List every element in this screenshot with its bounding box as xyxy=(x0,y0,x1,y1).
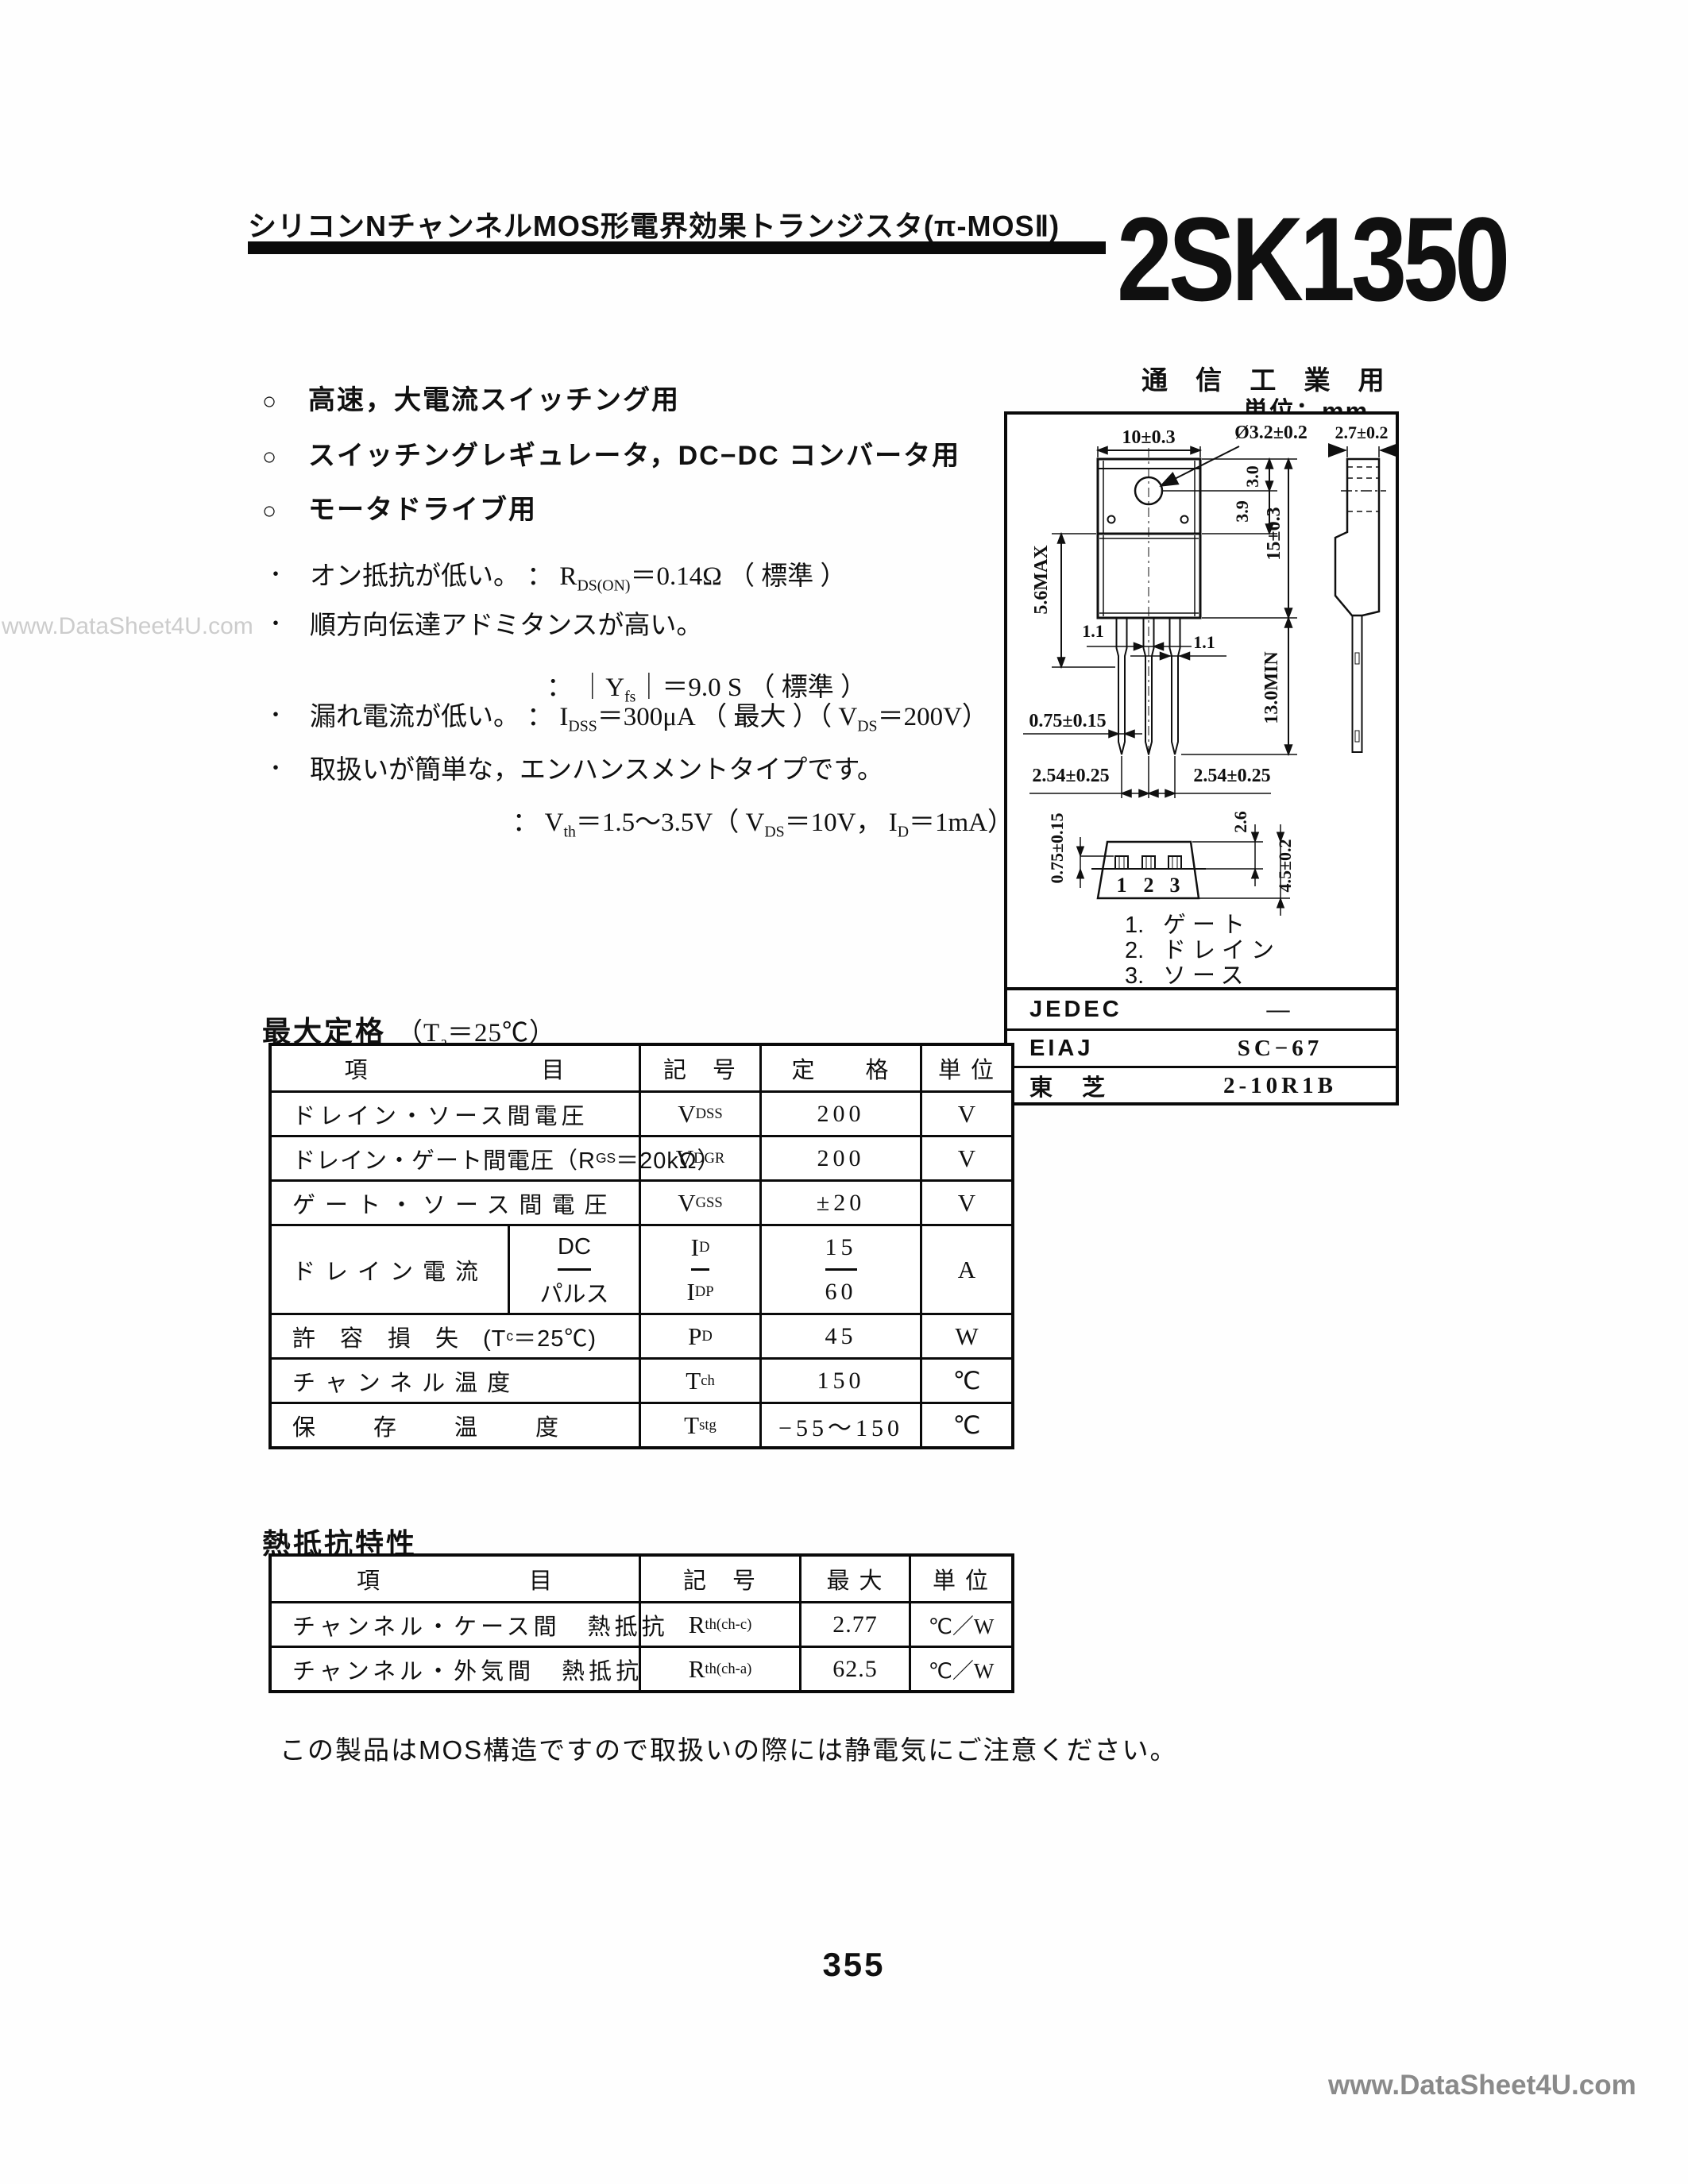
dim-hole-dia: Ø3.2±0.2 xyxy=(1234,423,1308,443)
feature-item: ・漏れ電流が低い。 ： IDSS＝300μA （ 最大 ）（ VDS＝200V） xyxy=(265,695,988,736)
dim-lead-length: 13.0MIN xyxy=(1261,651,1282,724)
pin-legend-number: 1. xyxy=(1125,913,1144,938)
toshiba-value: 2-10R1B xyxy=(1165,1073,1396,1099)
side-view xyxy=(1335,459,1386,752)
dim-height: 15±0.3 xyxy=(1264,507,1284,560)
pin-1-number: 1 xyxy=(1117,874,1127,897)
feature-item: ・順方向伝達アドミタンスが高い。 xyxy=(265,604,702,642)
jedec-value: ― xyxy=(1165,997,1396,1023)
eiaj-label: EIAJ xyxy=(1007,1036,1165,1062)
dim-2-6: 2.6 xyxy=(1230,811,1250,833)
dim-lead-thickness: 0.75±0.15 xyxy=(1029,711,1106,731)
circle-bullet-icon: ○ xyxy=(262,388,308,415)
table-row: チャンネル・外気間 熱抵抗 Rth(ch-a) 62.5 ℃／W xyxy=(272,1646,1011,1690)
bottom-view xyxy=(1077,824,1291,916)
watermark: www.DataSheet4U.com xyxy=(2,613,253,640)
eiaj-value: SC−67 xyxy=(1165,1036,1396,1062)
package-id-row: 東 芝 2-10R1B xyxy=(1007,1066,1396,1103)
dim-side-width: 2.7±0.2 xyxy=(1335,423,1388,442)
dim-3-0: 3.0 xyxy=(1242,465,1262,488)
dim-lead-w2: 1.1 xyxy=(1193,632,1215,652)
table-row: 許 容 損 失 (Tc＝25℃) PD 45 W xyxy=(272,1313,1011,1357)
dim-bottom-height: 4.5±0.2 xyxy=(1275,839,1295,892)
package-drawing: 10±0.3 Ø3.2±0.2 2.7±0.2 3.0 3.9 15±0.3 1… xyxy=(1007,415,1396,987)
feature-item: ・取扱いが簡単な，エンハンスメントタイプです。 xyxy=(265,748,883,786)
feature-formula: ： Vth＝1.5〜3.5V（ VDS＝10V， ID＝1mA） xyxy=(512,801,1014,842)
pin-legend-name: ゲート xyxy=(1163,913,1251,938)
front-view xyxy=(1098,448,1200,797)
dim-pitch-left: 2.54±0.25 xyxy=(1032,766,1109,786)
drain-pulse-label: パルス xyxy=(539,1271,608,1313)
table-row-drain-current: ドレイン電流 DC パルス ID IDP 15 60 A xyxy=(272,1224,1011,1313)
datasheet-page: www.DataSheet4U.com シリコンNチャンネルMOS形電界効果トラ… xyxy=(0,0,1688,2184)
dot-bullet-icon: ・ xyxy=(265,752,310,781)
toshiba-label: 東 芝 xyxy=(1007,1069,1165,1102)
table-row: チャンネル・ケース間 熱抵抗 Rth(ch-c) 2.77 ℃／W xyxy=(272,1601,1011,1646)
application-item: ○モータドライブ用 xyxy=(262,488,537,527)
table-header-row: 項 目 記 号 最 大 単 位 xyxy=(272,1557,1011,1601)
package-outline-box: 10±0.3 Ø3.2±0.2 2.7±0.2 3.0 3.9 15±0.3 1… xyxy=(1004,411,1399,1106)
application-item: ○スイッチングレギュレータ，DC−DC コンバータ用 xyxy=(262,434,960,473)
dot-bullet-icon: ・ xyxy=(265,558,310,588)
application-item: ○高速，大電流スイッチング用 xyxy=(262,378,680,417)
pin-legend-number: 2. xyxy=(1125,938,1144,963)
circle-bullet-icon: ○ xyxy=(262,444,308,471)
feature-item: ・オン抵抗が低い。 ： RDS(ON)＝0.14Ω （ 標準 ） xyxy=(265,554,847,596)
watermark: www.DataSheet4U.com xyxy=(1328,2070,1636,2101)
pin-legend-name: ドレイン xyxy=(1163,938,1280,963)
pin-legend-name: ソース xyxy=(1163,963,1250,987)
table-row: ドレイン・ゲート間電圧（RGS＝20kΩ） VDGR 200 V xyxy=(272,1135,1011,1179)
table-row: 保 存 温 度 Tstg −55〜150 ℃ xyxy=(272,1402,1011,1446)
package-id-row: EIAJ SC−67 xyxy=(1007,1028,1396,1066)
package-id-row: JEDEC ― xyxy=(1007,987,1396,1028)
page-title: シリコンNチャンネルMOS形電界効果トランジスタ(π-MOSⅡ) xyxy=(248,203,1060,245)
table-header-row: 項 目 記 号 定 格 単 位 xyxy=(272,1046,1011,1090)
thermal-table: 項 目 記 号 最 大 単 位 チャンネル・ケース間 熱抵抗 Rth(ch-c)… xyxy=(268,1553,1014,1693)
dim-3-9: 3.9 xyxy=(1232,500,1252,523)
table-row: ドレイン・ソース間電圧 VDSS 200 V xyxy=(272,1090,1011,1135)
max-ratings-table: 項 目 記 号 定 格 単 位 ドレイン・ソース間電圧 VDSS 200 V ド… xyxy=(268,1043,1014,1449)
dot-bullet-icon: ・ xyxy=(265,699,310,728)
title-underline xyxy=(248,241,1106,254)
circle-bullet-icon: ○ xyxy=(262,498,308,525)
pin-2-number: 2 xyxy=(1144,874,1154,897)
dim-bottom-thickness: 0.75±0.15 xyxy=(1047,812,1067,883)
drain-dc-label: DC xyxy=(558,1226,591,1271)
dimension-lines xyxy=(1023,446,1394,798)
page-number: 355 xyxy=(802,1946,906,1984)
pin-legend-number: 3. xyxy=(1125,963,1144,987)
table-row: ゲート・ソース間電圧 VGSS ±20 V xyxy=(272,1179,1011,1224)
dim-top-width: 10±0.3 xyxy=(1122,427,1175,448)
dim-body-max: 5.6MAX xyxy=(1031,545,1052,615)
esd-caution-note: この製品はMOS構造ですので取扱いの際には静電気にご注意ください。 xyxy=(280,1729,1178,1767)
dim-lead-w1: 1.1 xyxy=(1082,621,1104,641)
part-number: 2SK1350 xyxy=(1117,191,1506,328)
table-row: チャンネル温度 Tch 150 ℃ xyxy=(272,1357,1011,1402)
dot-bullet-icon: ・ xyxy=(265,608,310,637)
jedec-label: JEDEC xyxy=(1007,997,1165,1023)
dim-pitch-right: 2.54±0.25 xyxy=(1193,766,1270,786)
pin-3-number: 3 xyxy=(1170,874,1180,897)
